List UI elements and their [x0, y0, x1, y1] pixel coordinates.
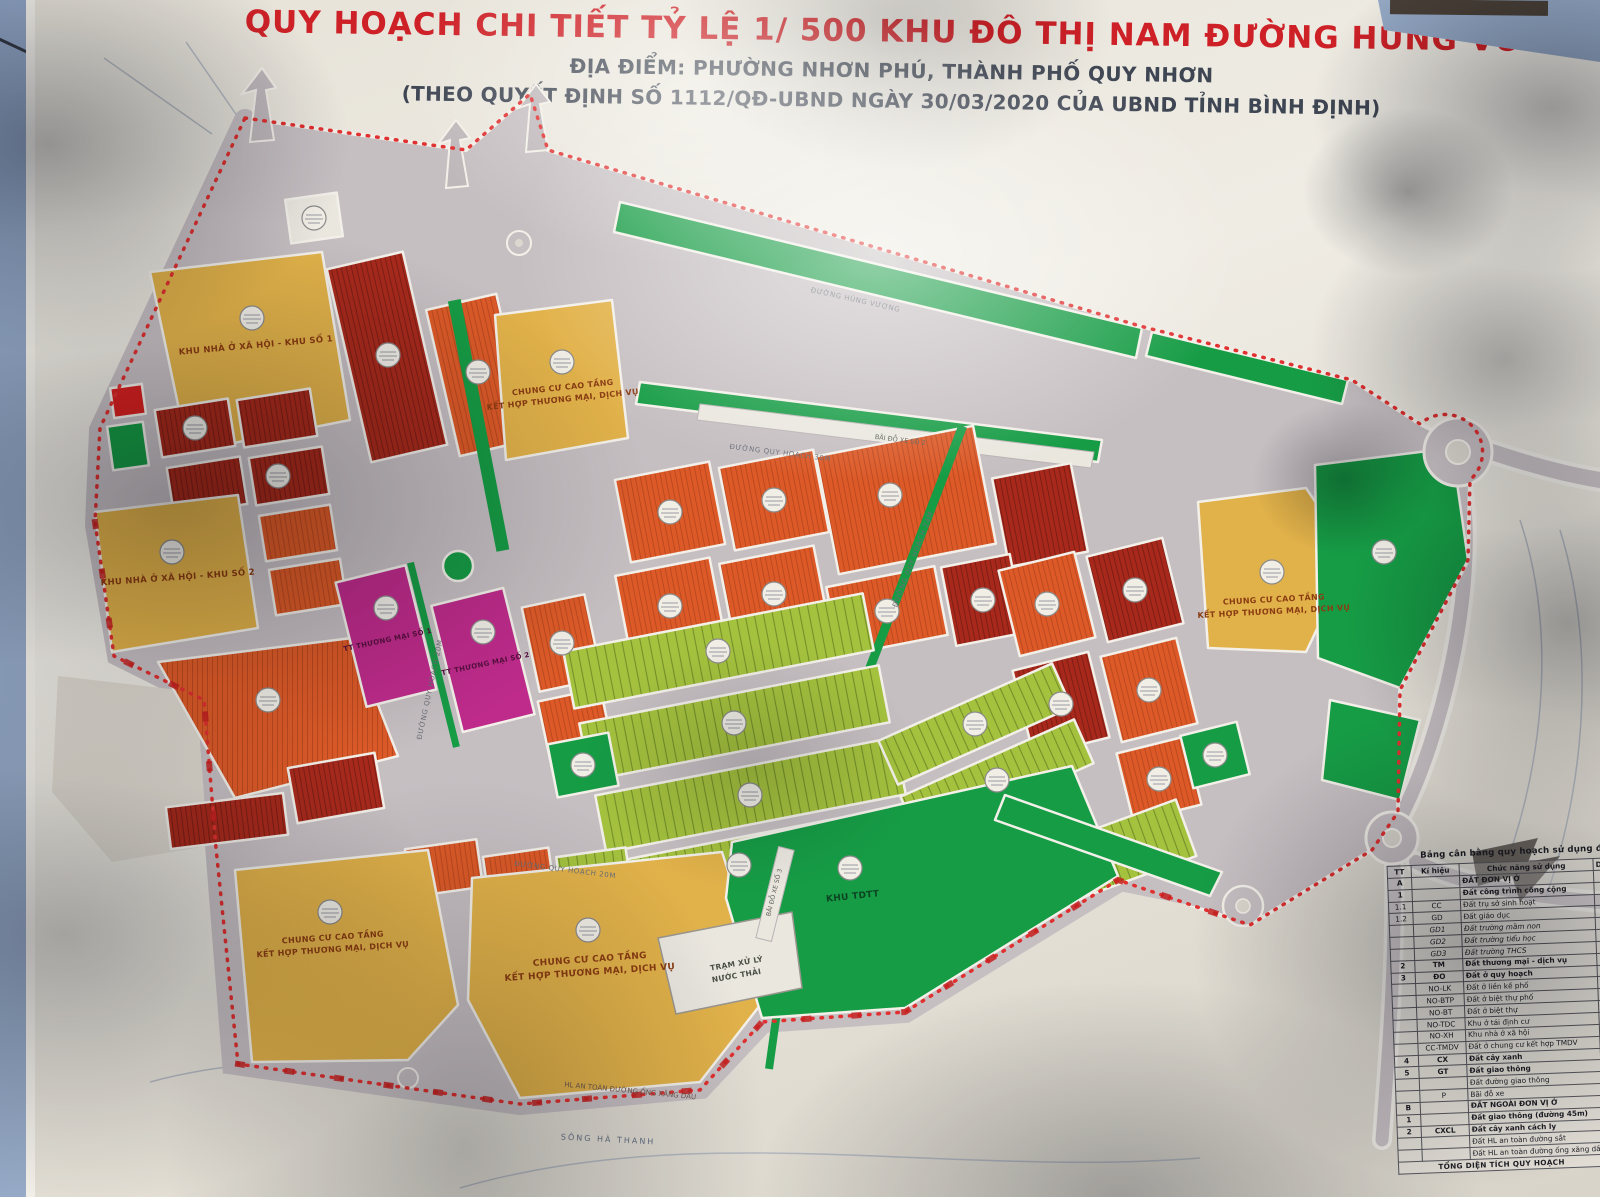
planning-poster-board: QUY HOẠCH CHI TIẾT TỶ LỆ 1/ 500 KHU ĐÔ T… [0, 0, 1600, 1197]
river-label: SÔNG HÀ THANH [561, 1131, 656, 1147]
legend-table: TT Kí hiệu Chức năng sử dụng Diện tích (… [1387, 856, 1600, 1175]
roof-edge [1390, 0, 1548, 16]
planning-map: KHU NHÀ Ở XÃ HỘI - KHU SỐ 1 KHU NHÀ Ở XÃ… [0, 0, 1600, 1197]
photo-canvas: QUY HOẠCH CHI TIẾT TỶ LỆ 1/ 500 KHU ĐÔ T… [0, 0, 1600, 1197]
power-wire [0, 37, 29, 54]
legend-col-tt: TT [1387, 866, 1411, 879]
legend: Bảng cân bằng quy hoạch sử dụng đất TT K… [1386, 840, 1600, 1175]
green-roundabout [443, 551, 473, 581]
legend-col-area: Diện tích (m2) [1593, 856, 1600, 870]
